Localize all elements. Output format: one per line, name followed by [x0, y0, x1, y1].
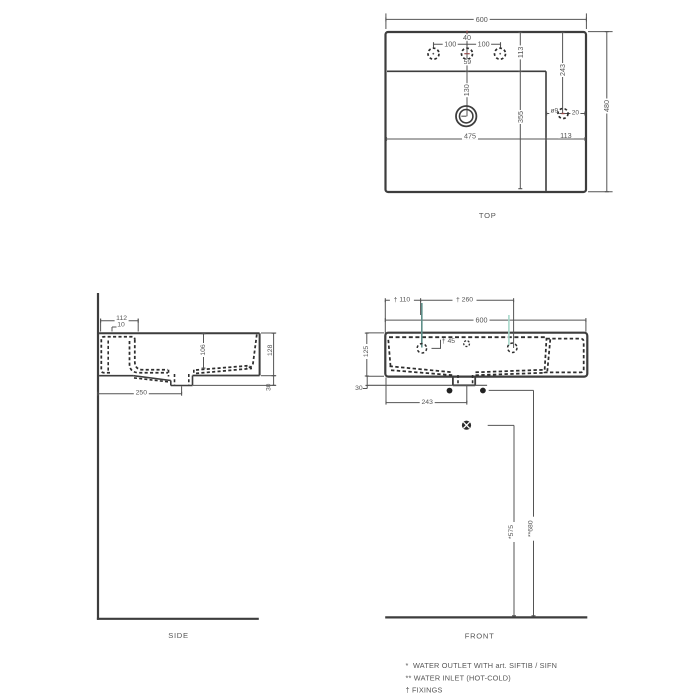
svg-text:355: 355 [516, 111, 525, 123]
svg-text:130: 130 [462, 84, 471, 96]
svg-text:TOP: TOP [479, 211, 497, 220]
svg-text:† 260: † 260 [456, 296, 473, 303]
svg-text:250: 250 [136, 390, 148, 397]
svg-text:20: 20 [572, 109, 580, 116]
svg-text:243: 243 [558, 64, 567, 76]
svg-text:† FIXINGS: † FIXINGS [406, 686, 443, 695]
svg-text:100: 100 [478, 40, 490, 49]
svg-text:243: 243 [422, 399, 434, 406]
svg-text:600: 600 [476, 316, 488, 325]
svg-text:* WATER OUTLET WITH art. SIFT: * WATER OUTLET WITH art. SIFTIB / SIFN [406, 661, 558, 670]
svg-text:30: 30 [355, 385, 363, 392]
svg-text:480: 480 [602, 100, 611, 112]
svg-text:**680: **680 [528, 520, 535, 537]
svg-text:475: 475 [464, 132, 476, 141]
svg-text:600: 600 [476, 15, 488, 24]
svg-text:106: 106 [200, 344, 207, 356]
svg-text:125: 125 [363, 346, 370, 358]
svg-text:128: 128 [267, 344, 274, 356]
svg-text:30: 30 [266, 383, 273, 391]
svg-text:113: 113 [560, 131, 571, 140]
svg-text:† 110: † 110 [394, 296, 411, 303]
svg-text:† 45: † 45 [442, 338, 455, 345]
svg-text:59: 59 [464, 59, 472, 66]
svg-text:** WATER INLET (HOT-COLD): ** WATER INLET (HOT-COLD) [406, 674, 511, 683]
svg-text:113: 113 [516, 47, 525, 58]
svg-text:SIDE: SIDE [168, 631, 189, 640]
svg-text:10: 10 [117, 321, 125, 328]
svg-text:FRONT: FRONT [465, 631, 495, 640]
svg-text:40: 40 [463, 33, 471, 42]
svg-text:*575: *575 [508, 525, 515, 539]
svg-text:100: 100 [444, 40, 456, 49]
